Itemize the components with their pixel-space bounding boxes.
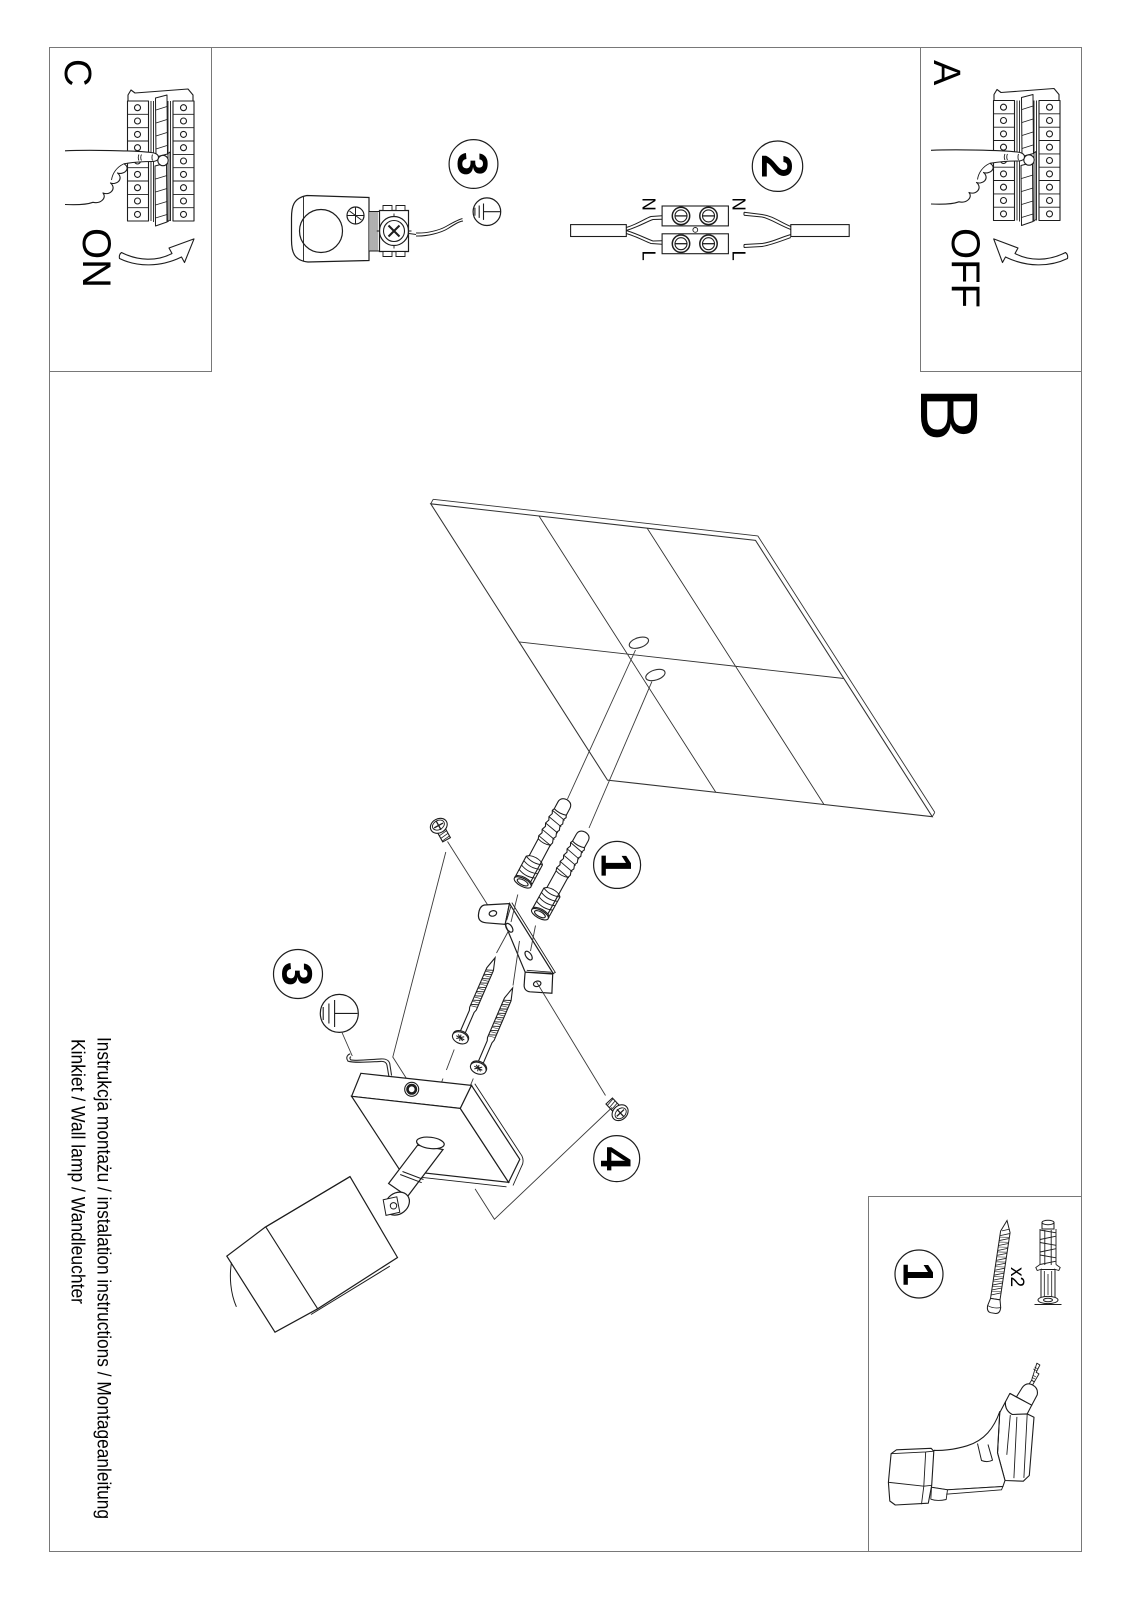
svg-text:N: N [729, 198, 750, 211]
svg-text:C: C [56, 59, 98, 86]
svg-text:OFF: OFF [943, 228, 987, 308]
svg-text:ON: ON [74, 228, 118, 288]
svg-text:3: 3 [273, 962, 321, 986]
svg-text:2: 2 [752, 154, 800, 178]
svg-text:Kinkiet / Wall lamp / Wandleuc: Kinkiet / Wall lamp / Wandleuchter [67, 1039, 89, 1304]
svg-text:N: N [639, 198, 660, 211]
svg-text:L: L [729, 251, 750, 261]
svg-text:B: B [903, 387, 994, 442]
svg-text:L: L [639, 251, 660, 261]
svg-text:A: A [925, 60, 967, 86]
svg-text:4: 4 [591, 1147, 639, 1171]
svg-text:1: 1 [894, 1262, 942, 1286]
svg-text:x2: x2 [1006, 1267, 1027, 1287]
svg-text:3: 3 [448, 152, 496, 176]
svg-text:1: 1 [592, 853, 640, 877]
svg-text:Instrukcja montażu / instalati: Instrukcja montażu / instalation instruc… [93, 1037, 115, 1519]
